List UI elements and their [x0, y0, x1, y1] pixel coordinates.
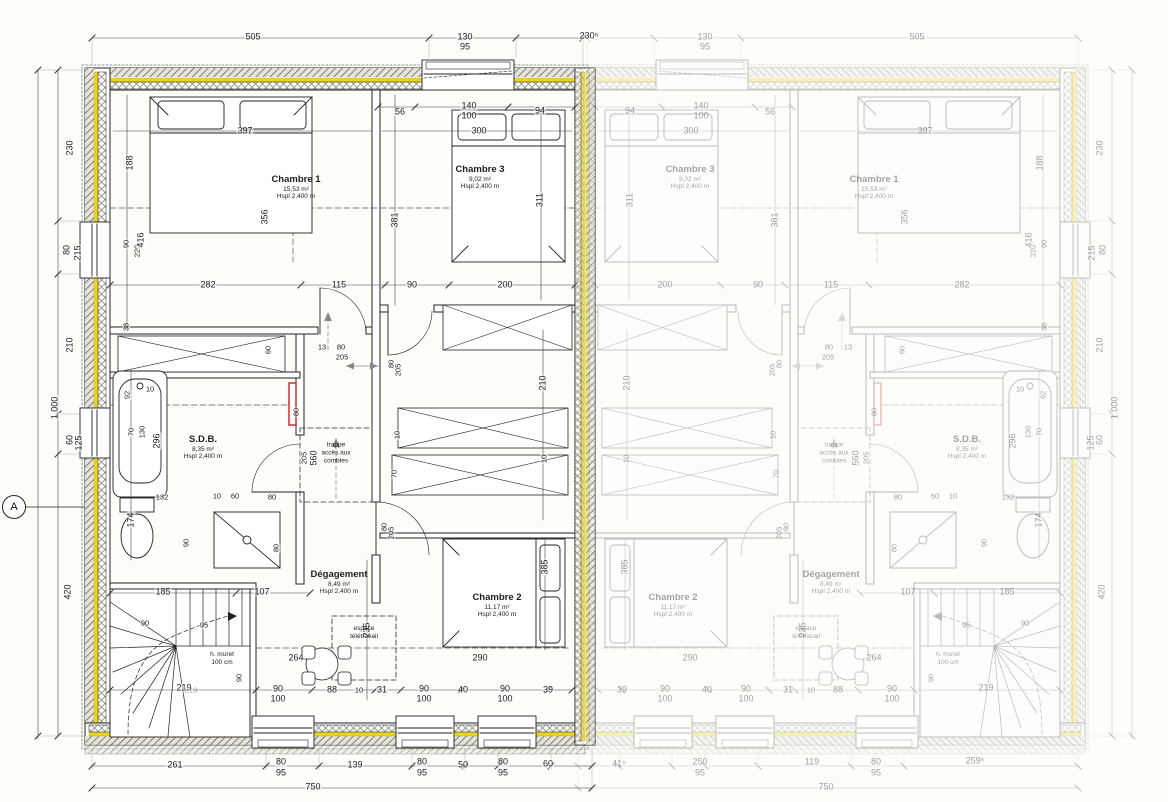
dim-label: 381: [771, 211, 780, 228]
dim-label: 80: [292, 407, 300, 417]
dim-label: 130: [456, 33, 473, 42]
dim-label: 140: [460, 102, 477, 111]
dim-label: 100: [692, 112, 709, 121]
dim-label: 94: [534, 107, 546, 116]
dim-label: 95: [459, 43, 471, 52]
dim-label: 100: [460, 112, 477, 121]
dim-label: 80: [272, 543, 280, 553]
dim-label: 296: [1009, 432, 1018, 449]
dim-label: 80: [497, 758, 509, 767]
dim-label: 416: [137, 231, 146, 248]
dim-label: 90: [1040, 239, 1048, 249]
dim-label: 107: [899, 588, 916, 597]
dim-label: 200: [496, 281, 513, 290]
dim-label: 88: [326, 686, 338, 695]
dim-label: 210: [66, 336, 75, 353]
dim-label: 282: [199, 281, 216, 290]
dim-label: 130: [1024, 425, 1032, 440]
dim-label: 282: [953, 281, 970, 290]
dim-label: 90: [659, 685, 671, 694]
annotation-trappe: trappe accès aux combles: [321, 441, 350, 464]
room-label-chambre3: Chambre 39,02 m²Hspl 2,400 m: [665, 165, 714, 191]
dim-label: 205: [821, 353, 836, 361]
dim-label: 10: [540, 454, 548, 464]
dim-label: 210: [539, 374, 548, 391]
room-label-degagement: Dégagement8,49 m²Hspl 2,400 m: [802, 570, 859, 596]
dim-label: 95: [870, 769, 882, 778]
dim-label: 290: [681, 654, 698, 663]
dim-label: 125: [75, 434, 84, 451]
dim-label: 90: [235, 673, 243, 683]
dim-label: 90: [406, 281, 418, 290]
dim-label: 90: [886, 685, 898, 694]
dim-label: 10: [212, 492, 222, 500]
dim-label: 10: [806, 686, 816, 694]
dim-label: 10: [145, 385, 155, 393]
dim-label: 70: [772, 469, 780, 479]
dim-label: 205: [394, 363, 402, 378]
dim-label: 95: [199, 621, 209, 629]
room-label-chambre1: Chambre 115,53 m²Hspl 2,400 m: [271, 175, 320, 201]
dim-label: 250: [691, 758, 708, 767]
dim-label: 70: [127, 427, 135, 437]
dim-label: 188: [1036, 154, 1045, 171]
dim-label: 80: [824, 343, 834, 351]
dim-label: 259⁵: [965, 757, 986, 766]
room-label-degagement: Dégagement8,49 m²Hspl 2,400 m: [310, 570, 367, 596]
dim-label: 210: [623, 374, 632, 391]
dim-label: 100: [269, 695, 286, 704]
dim-label: 381: [391, 211, 400, 228]
dim-label: 174: [127, 511, 136, 528]
dim-label: 56: [394, 108, 406, 117]
dim-label: 385: [541, 558, 550, 575]
dim-label: 90: [752, 281, 764, 290]
dim-label: 100: [496, 695, 513, 704]
dim-label: 261: [166, 761, 183, 770]
dim-label: 90: [272, 685, 284, 694]
dim-label: 95: [275, 769, 287, 778]
dim-label: 188: [126, 154, 135, 171]
dim-label: 311: [536, 192, 545, 208]
dim-label: 80: [870, 758, 882, 767]
dim-label: 90: [182, 538, 190, 548]
dim-label: 50: [457, 761, 469, 770]
dim-label: 80: [1099, 244, 1108, 256]
dim-label: 115: [823, 281, 839, 290]
dim-label: 750: [817, 783, 834, 792]
dim-label: 215: [74, 244, 83, 261]
dim-label: 115: [331, 281, 347, 290]
dim-label: 90: [122, 239, 130, 249]
dim-label: 70: [390, 469, 398, 479]
dim-label: 60: [264, 345, 272, 355]
floor-plan-canvas: 5055051301309595230⁵56561401401001009494…: [0, 0, 1168, 802]
dim-label: 205: [300, 451, 308, 466]
dim-label: 205: [387, 526, 395, 541]
dim-label: 60: [930, 492, 940, 500]
dim-label: 10: [622, 454, 630, 464]
dim-label: 90: [740, 685, 752, 694]
dim-label: 13: [317, 343, 327, 351]
dim-label: 130: [696, 33, 713, 42]
dim-label: 311: [626, 192, 635, 208]
room-label-chambre1: Chambre 115,53 m²Hspl 2,400 m: [849, 175, 898, 201]
dim-label: 139: [346, 761, 363, 770]
dim-label: 80: [890, 543, 898, 553]
annotation-section: A: [2, 495, 26, 519]
dim-label: 95: [416, 769, 428, 778]
dim-label: 130: [138, 425, 146, 440]
dim-label: 750: [304, 783, 321, 792]
dim-label: 185: [998, 588, 1015, 597]
dim-label: 95: [961, 621, 971, 629]
dim-label: 119: [804, 758, 820, 767]
dim-label: 13: [843, 343, 853, 351]
annotation-espace: espace télétravail: [792, 625, 820, 641]
dim-label: 38: [122, 322, 130, 332]
dim-label: 80: [63, 244, 72, 256]
dim-label: 60: [542, 760, 554, 769]
dim-label: 264: [865, 654, 882, 663]
dim-label: 215: [1088, 244, 1097, 261]
dim-label: 132: [155, 493, 170, 501]
dim-label: 60: [1096, 434, 1105, 446]
dim-label: 60: [230, 492, 240, 500]
dim-label: 420: [64, 583, 73, 600]
dim-label: 100: [737, 695, 754, 704]
dim-label: 205: [768, 363, 776, 378]
dim-label: 205: [862, 451, 870, 466]
dim-label: 219: [184, 686, 199, 694]
dim-label: 90: [1020, 619, 1030, 627]
dim-label: 92: [1039, 390, 1047, 400]
dim-label: 1.000: [1111, 396, 1120, 421]
dim-label: 80: [893, 493, 903, 501]
dim-label: 505: [908, 33, 925, 42]
dim-label: 95: [497, 769, 509, 778]
dim-label: 60: [898, 345, 906, 355]
dim-label: 300: [682, 127, 699, 136]
dim-label: 90: [499, 685, 511, 694]
dim-label: 38: [1040, 322, 1048, 332]
dim-label: 300: [470, 127, 487, 136]
dim-label: 80: [870, 407, 878, 417]
room-label-chambre2: Chambre 211,17 m²Hspl 2,400 m: [648, 593, 697, 619]
dim-label: 92: [123, 390, 131, 400]
dim-label: 416: [1025, 231, 1034, 248]
dim-label: 397: [236, 127, 253, 136]
dim-label: 100: [656, 695, 673, 704]
dim-label: 39: [616, 686, 628, 695]
dim-label: 95: [694, 769, 706, 778]
dim-label: 10: [769, 430, 777, 440]
dim-label: 90: [980, 538, 988, 548]
dim-label: 356: [901, 208, 910, 225]
dim-label: 90: [140, 619, 150, 627]
dim-label: 560: [310, 449, 319, 466]
dim-label: 230⁵: [579, 32, 600, 41]
room-label-chambre2: Chambre 211,17 m²Hspl 2,400 m: [472, 593, 521, 619]
dim-label: 80: [775, 359, 783, 369]
dim-label: 10: [354, 686, 364, 694]
dim-label: 31: [376, 686, 388, 695]
room-label-chambre3: Chambre 39,02 m²Hspl 2,400 m: [455, 165, 504, 191]
dim-label: 200: [656, 281, 673, 290]
dim-label: 10: [948, 492, 958, 500]
dim-label: 40: [701, 686, 713, 695]
dim-label: 88: [832, 686, 844, 695]
dim-label: 100: [883, 695, 900, 704]
dim-label: 397: [916, 127, 933, 136]
labels-layer: 5055051301309595230⁵56561401401001009494…: [0, 0, 1168, 802]
annotation-muret: h. muret 100 cm: [936, 651, 960, 667]
dim-label: 90: [418, 685, 430, 694]
room-label-sdb: S.D.B.8,35 m²Hspl 2,400 m: [184, 435, 222, 461]
annotation-espace: espace télétravail: [350, 625, 378, 641]
dim-label: 356: [261, 208, 270, 225]
dim-label: 90: [927, 673, 935, 683]
dim-label: 94: [624, 107, 636, 116]
dim-label: 125: [1087, 434, 1096, 451]
dim-label: 230: [66, 139, 75, 156]
dim-label: 219: [977, 684, 994, 693]
dim-label: 39: [542, 686, 554, 695]
annotation-trappe: trappe accès aux combles: [819, 441, 848, 464]
dim-label: 385: [621, 558, 630, 575]
dim-label: 560: [852, 449, 861, 466]
dim-label: 100: [415, 695, 432, 704]
dim-label: 80: [782, 522, 790, 532]
dim-label: 140: [692, 102, 709, 111]
dim-label: 264: [287, 654, 304, 663]
dim-label: 185: [154, 588, 171, 597]
dim-label: 205: [335, 353, 350, 361]
dim-label: 80: [336, 343, 346, 351]
dim-label: 132: [1001, 493, 1016, 501]
dim-label: 40: [457, 686, 469, 695]
dim-label: 230: [1096, 139, 1105, 156]
annotation-muret: h. muret 100 cm: [210, 651, 234, 667]
dim-label: 80: [275, 758, 287, 767]
dim-label: 95: [699, 43, 711, 52]
dim-label: 420: [1098, 583, 1107, 600]
dim-label: 31: [782, 686, 794, 695]
dim-label: 10: [1015, 385, 1025, 393]
dim-label: 10: [393, 430, 401, 440]
dim-label: 210: [1096, 336, 1105, 353]
dim-label: 505: [244, 33, 261, 42]
dim-label: 41⁵: [611, 760, 627, 769]
dim-label: 107: [253, 588, 270, 597]
room-label-sdb: S.D.B.8,35 m²Hspl 2,400 m: [948, 435, 986, 461]
dim-label: 174: [1035, 511, 1044, 528]
dim-label: 296: [153, 432, 162, 449]
dim-label: 80: [416, 758, 428, 767]
dim-label: 1.000: [51, 396, 60, 421]
dim-label: 56: [764, 108, 776, 117]
dim-label: 80: [267, 493, 277, 501]
dim-label: 290: [471, 654, 488, 663]
dim-label: 205: [775, 526, 783, 541]
dim-label: 70: [1035, 427, 1043, 437]
